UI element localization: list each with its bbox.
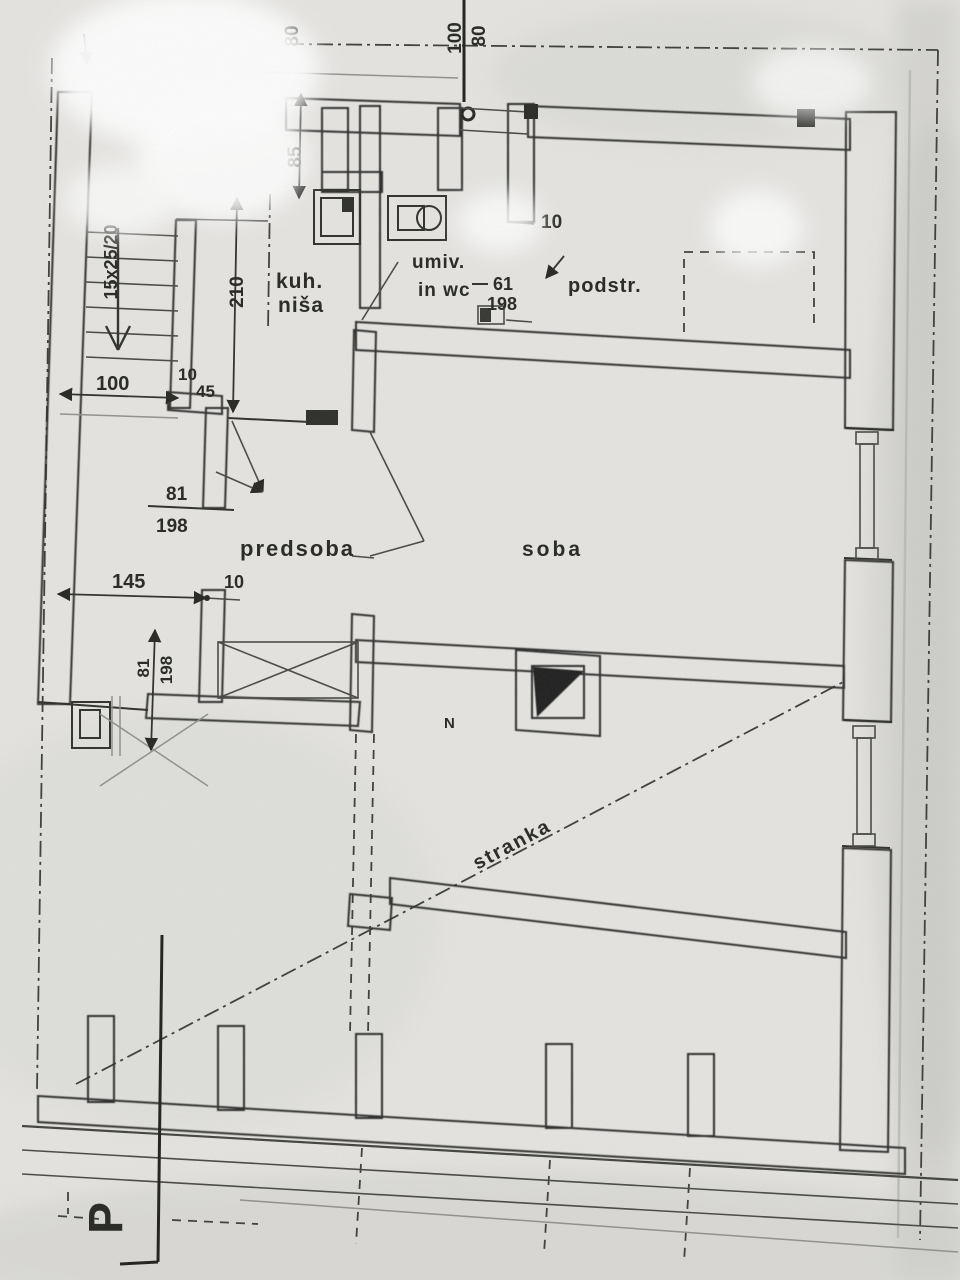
scanned-floor-plan: kuh. niša umiv. in wc podstr. predsoba s… (0, 0, 960, 1280)
floor-plan-svg: kuh. niša umiv. in wc podstr. predsoba s… (0, 0, 960, 1280)
film-grain (0, 0, 960, 1280)
